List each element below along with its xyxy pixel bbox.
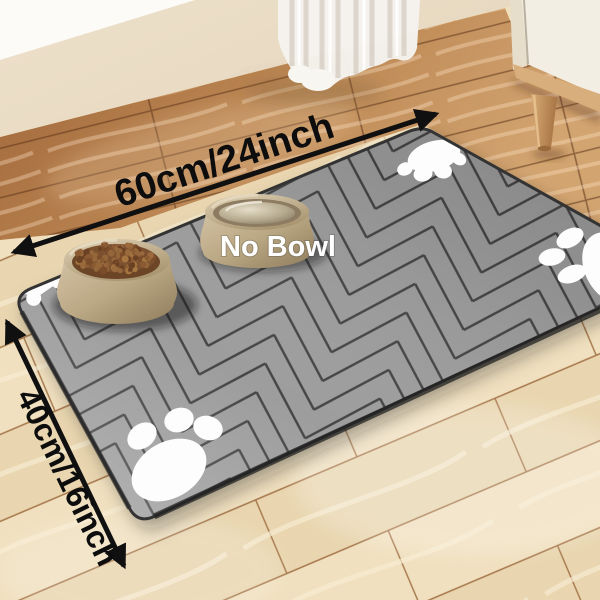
no-bowl-label: No Bowl (220, 231, 336, 263)
product-photo: 60cm/24inch 40cm/16inch No Bowl (0, 0, 600, 600)
water (219, 202, 295, 224)
